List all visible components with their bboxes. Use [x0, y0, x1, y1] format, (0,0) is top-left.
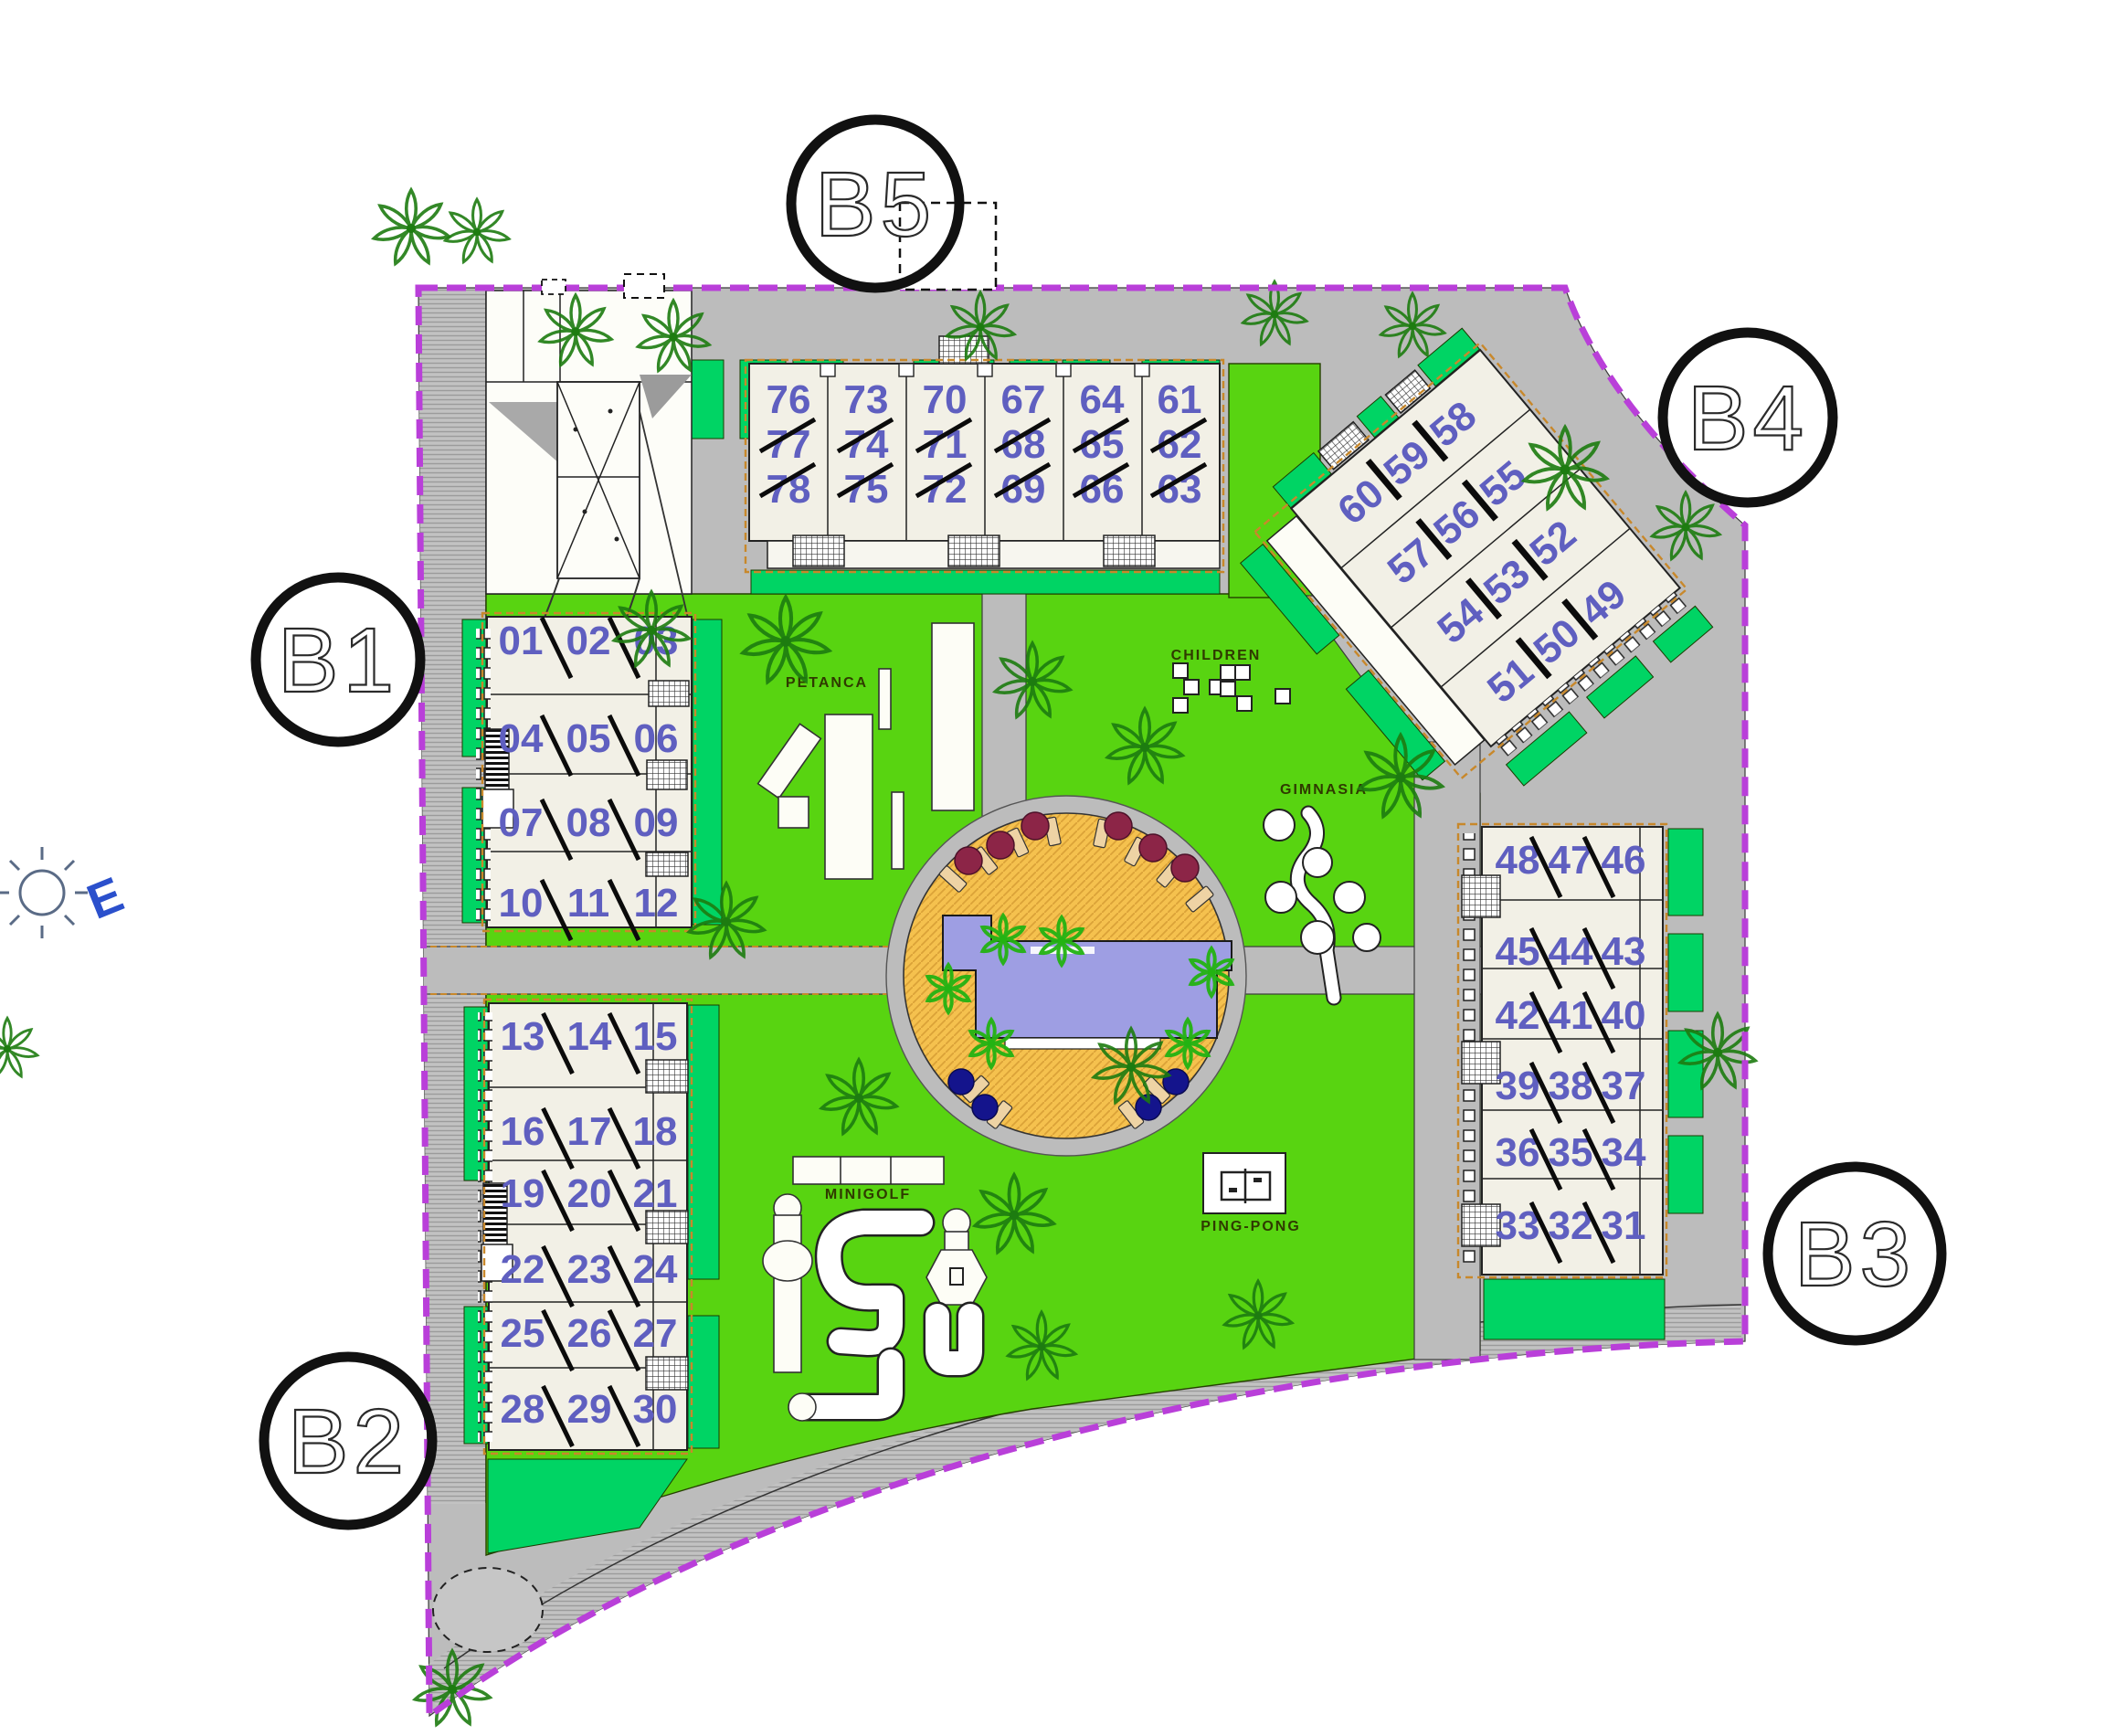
unit-number: 18 [633, 1109, 678, 1154]
site-plan-page: 767778737475707172676869646566616263 010… [0, 0, 2105, 1736]
unit-number: 27 [633, 1311, 678, 1356]
unit-number: 76 [767, 377, 811, 422]
unit-number: 10 [499, 881, 544, 926]
block-label-b3: B3 [1768, 1167, 1941, 1340]
unit-number: 67 [1001, 377, 1046, 422]
b3-label-text: B3 [1794, 1203, 1915, 1306]
block-label-b2: B2 [264, 1357, 432, 1525]
ping-pong-area [1203, 1153, 1285, 1213]
block-label-b4: B4 [1663, 333, 1833, 503]
unit-number: 73 [844, 377, 889, 422]
b5-label-text: B5 [815, 153, 936, 256]
east-label: E [79, 867, 131, 930]
building-b3: 484746454443424140393837363534333231 [1458, 824, 1703, 1339]
stairs [647, 760, 687, 789]
unit-number: 14 [567, 1014, 612, 1059]
unit-number: 06 [634, 716, 679, 761]
stairs [948, 535, 1000, 566]
unit-number: 11 [567, 881, 610, 926]
unit-number: 34 [1602, 1130, 1646, 1175]
unit-number: 43 [1602, 929, 1646, 974]
gate-marker [624, 274, 664, 298]
unit-number: 46 [1602, 838, 1646, 883]
unit-number: 21 [633, 1171, 678, 1216]
unit-number: 37 [1602, 1064, 1646, 1108]
unit-number: 40 [1602, 993, 1646, 1038]
building-b5: 767778737475707172676869646566616263 [746, 336, 1223, 594]
unit-number: 05 [566, 716, 611, 761]
unit-number: 12 [634, 881, 679, 926]
unit-number: 31 [1602, 1203, 1646, 1248]
sun-icon [0, 847, 88, 938]
unit-number: 16 [501, 1109, 545, 1154]
b2-label-text: B2 [288, 1391, 408, 1493]
gimnasia-label: GIMNASIA [1280, 782, 1368, 798]
block-label-b5: B5 [791, 120, 959, 288]
unit-number: 30 [633, 1387, 678, 1432]
site-plan-drawing: 767778737475707172676869646566616263 010… [0, 0, 2105, 1736]
minigolf-label: MINIGOLF [825, 1187, 911, 1202]
unit-number: 23 [567, 1247, 612, 1292]
unit-number: 01 [499, 619, 544, 663]
b4-label-text: B4 [1687, 367, 1808, 470]
block-label-b1: B1 [256, 577, 420, 742]
unit-number: 04 [499, 716, 544, 761]
unit-number: 24 [633, 1247, 678, 1292]
unit-number: 17 [567, 1109, 612, 1154]
unit-number: 19 [501, 1171, 545, 1216]
stairs [793, 535, 844, 566]
unit-number: 22 [501, 1247, 545, 1292]
unit-number: 28 [501, 1387, 545, 1432]
unit-number: 02 [566, 619, 611, 663]
unit-number: 64 [1080, 377, 1125, 422]
unit-number: 29 [567, 1387, 612, 1432]
building-b1: 010203040506070809101112 [462, 613, 722, 940]
unit-number: 15 [633, 1014, 678, 1059]
unit-number: 13 [501, 1014, 545, 1059]
b1-label-text: B1 [278, 609, 398, 712]
petanca-label: PETANCA [786, 675, 868, 691]
stairs [646, 852, 688, 876]
unit-number: 70 [923, 377, 968, 422]
unit-number: 25 [501, 1311, 545, 1356]
pingpong-label: PING-PONG [1201, 1219, 1301, 1234]
stairs [646, 1060, 688, 1093]
pool-area [886, 796, 1246, 1156]
unit-number: 61 [1158, 377, 1202, 422]
unit-number: 07 [499, 800, 544, 845]
children-label: CHILDREN [1171, 648, 1262, 663]
gate-marker [542, 280, 566, 294]
stairs [649, 681, 689, 706]
unit-number: 08 [566, 800, 611, 845]
unit-number: 09 [634, 800, 679, 845]
roundabout [433, 1568, 543, 1652]
stairs [646, 1357, 688, 1390]
unit-number: 20 [567, 1171, 612, 1216]
unit-number: 26 [567, 1311, 612, 1356]
stairs [1104, 535, 1155, 566]
